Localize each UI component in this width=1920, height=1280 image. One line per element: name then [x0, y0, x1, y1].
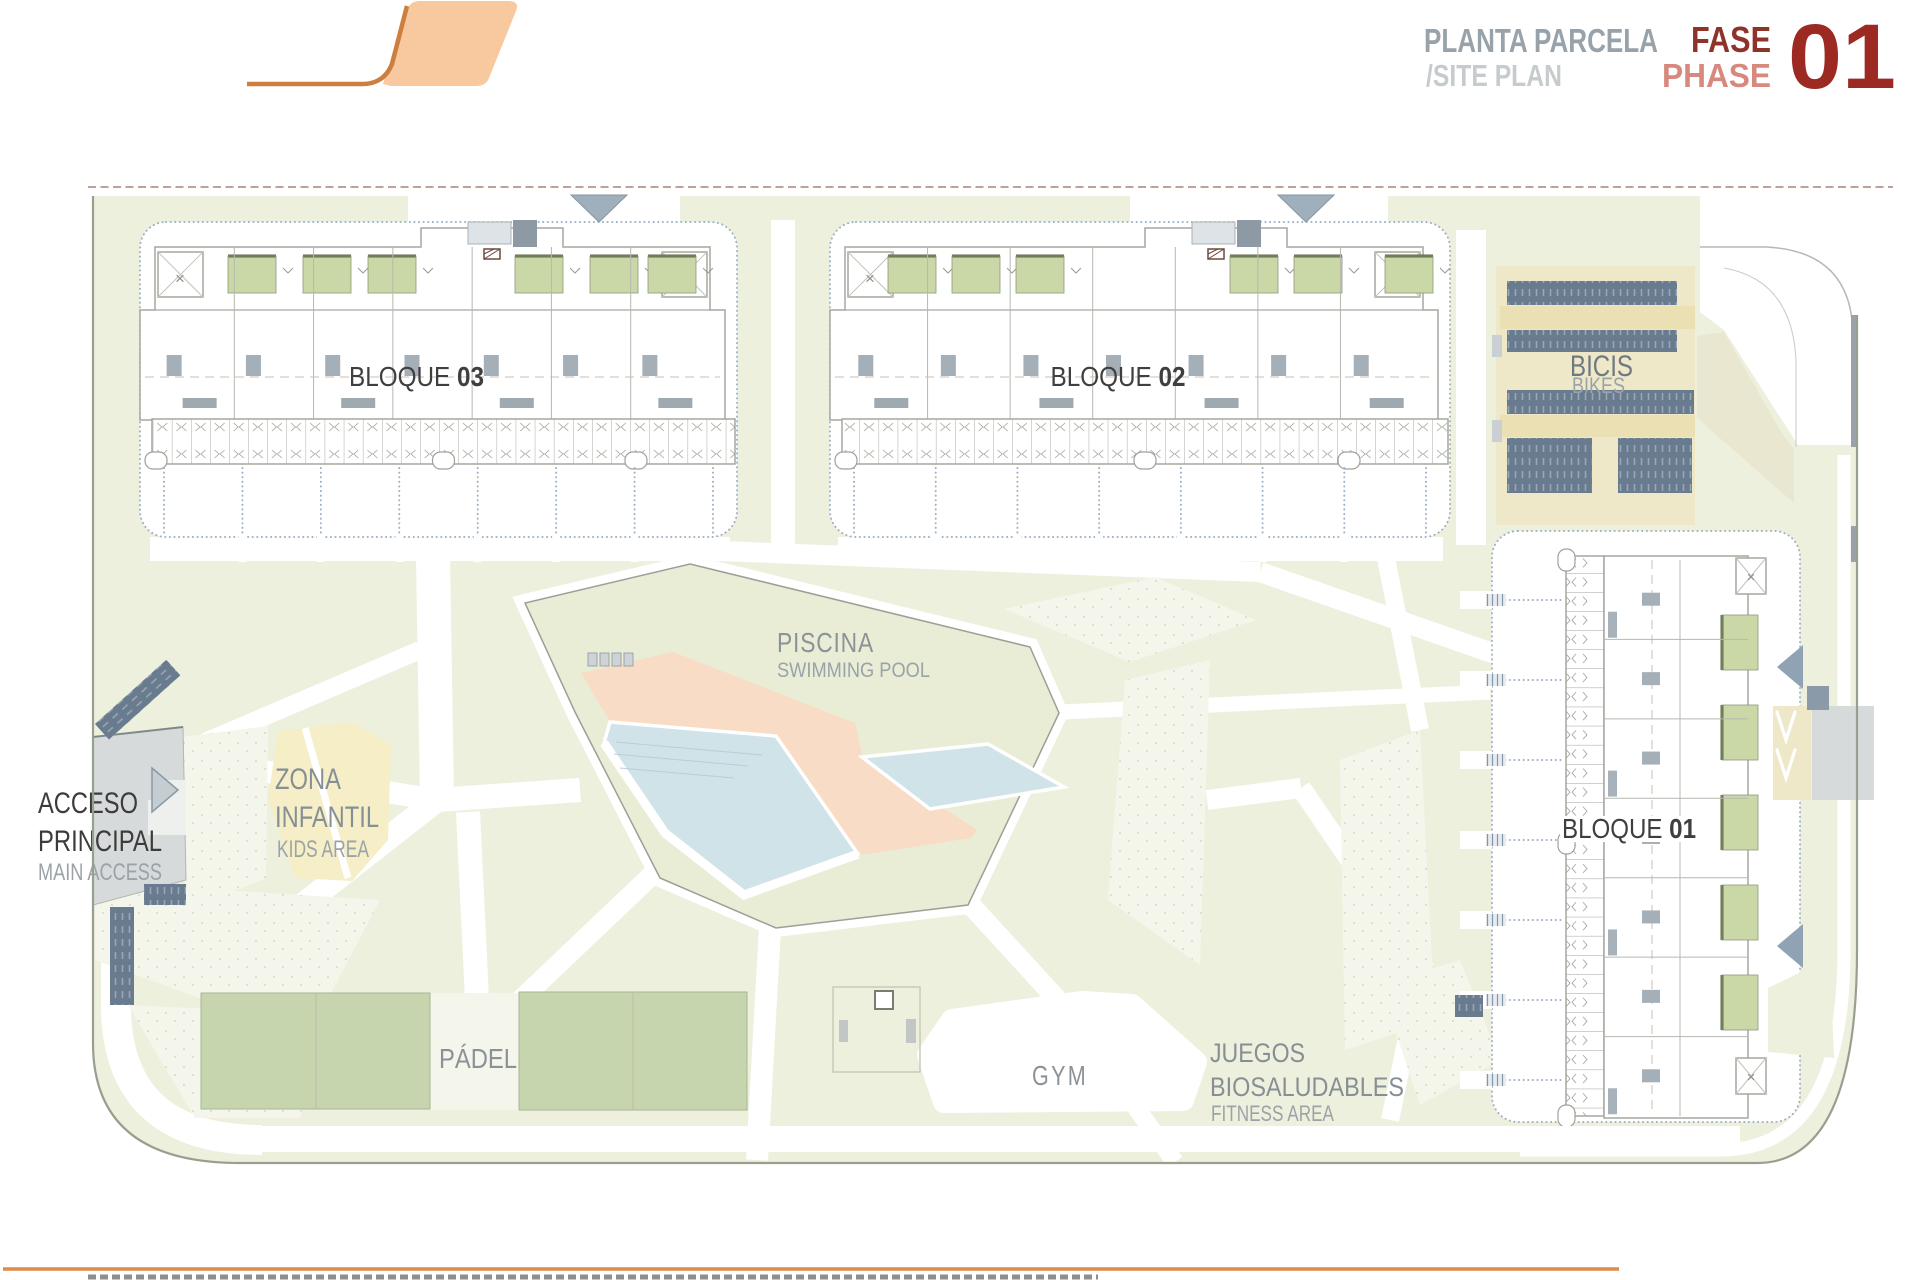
svg-text:ACCESO: ACCESO	[38, 787, 138, 820]
svg-text:PHASE: PHASE	[1662, 57, 1771, 94]
svg-text:PRINCIPAL: PRINCIPAL	[38, 825, 162, 858]
svg-text:PISCINA: PISCINA	[777, 627, 874, 658]
svg-text:PLANTA PARCELA: PLANTA PARCELA	[1424, 22, 1658, 59]
svg-text:ZONA: ZONA	[275, 763, 341, 796]
svg-text:BIOSALUDABLES: BIOSALUDABLES	[1210, 1072, 1404, 1102]
svg-text:KIDS AREA: KIDS AREA	[277, 836, 369, 863]
svg-text:/SITE PLAN: /SITE PLAN	[1426, 58, 1562, 93]
svg-text:BLOQUE 01: BLOQUE 01	[1562, 813, 1696, 844]
svg-text:×: ×	[1747, 569, 1756, 586]
svg-text:SWIMMING POOL: SWIMMING POOL	[777, 659, 930, 682]
svg-text:BIKES: BIKES	[1572, 373, 1625, 398]
svg-text:PÁDEL: PÁDEL	[439, 1043, 517, 1074]
svg-text:01: 01	[1788, 6, 1896, 108]
svg-text:BLOQUE 02: BLOQUE 02	[1051, 361, 1186, 392]
svg-text:×: ×	[865, 269, 875, 288]
svg-text:INFANTIL: INFANTIL	[275, 801, 379, 834]
svg-text:FASE: FASE	[1691, 19, 1771, 60]
svg-text:×: ×	[1747, 1069, 1756, 1086]
svg-text:MAIN ACCESS: MAIN ACCESS	[38, 859, 162, 886]
svg-text:GYM: GYM	[1032, 1060, 1088, 1091]
svg-text:JUEGOS: JUEGOS	[1210, 1038, 1305, 1068]
svg-text:BLOQUE 03: BLOQUE 03	[349, 361, 484, 392]
svg-text:FITNESS AREA: FITNESS AREA	[1211, 1101, 1334, 1126]
svg-text:×: ×	[175, 269, 185, 288]
